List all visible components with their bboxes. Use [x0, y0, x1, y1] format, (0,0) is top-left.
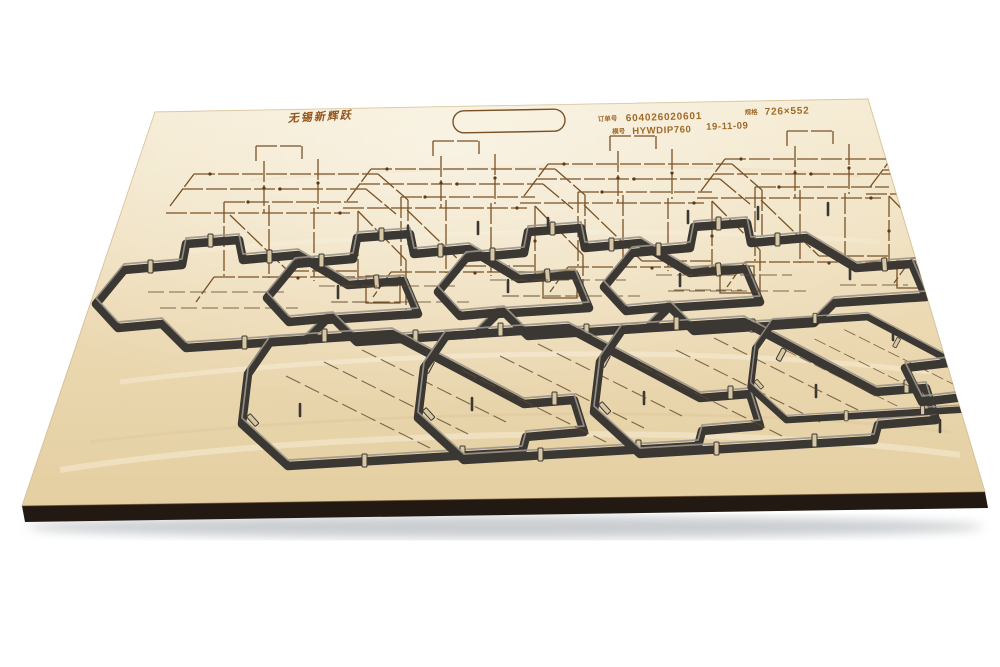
photo-stage: 无锡新辉跃 订单号 604026020601 规格 726×552 模号 HYW… — [0, 0, 1000, 667]
die-code: HYWDIP760 — [632, 124, 692, 137]
die-label: 模号 — [612, 126, 626, 135]
sheet-size: 726×552 — [765, 105, 810, 117]
die-board-product-photo: 无锡新辉跃 订单号 604026020601 规格 726×552 模号 HYW… — [0, 0, 1000, 667]
die-date: 19-11-09 — [706, 120, 749, 132]
size-label: 规格 — [745, 107, 759, 116]
